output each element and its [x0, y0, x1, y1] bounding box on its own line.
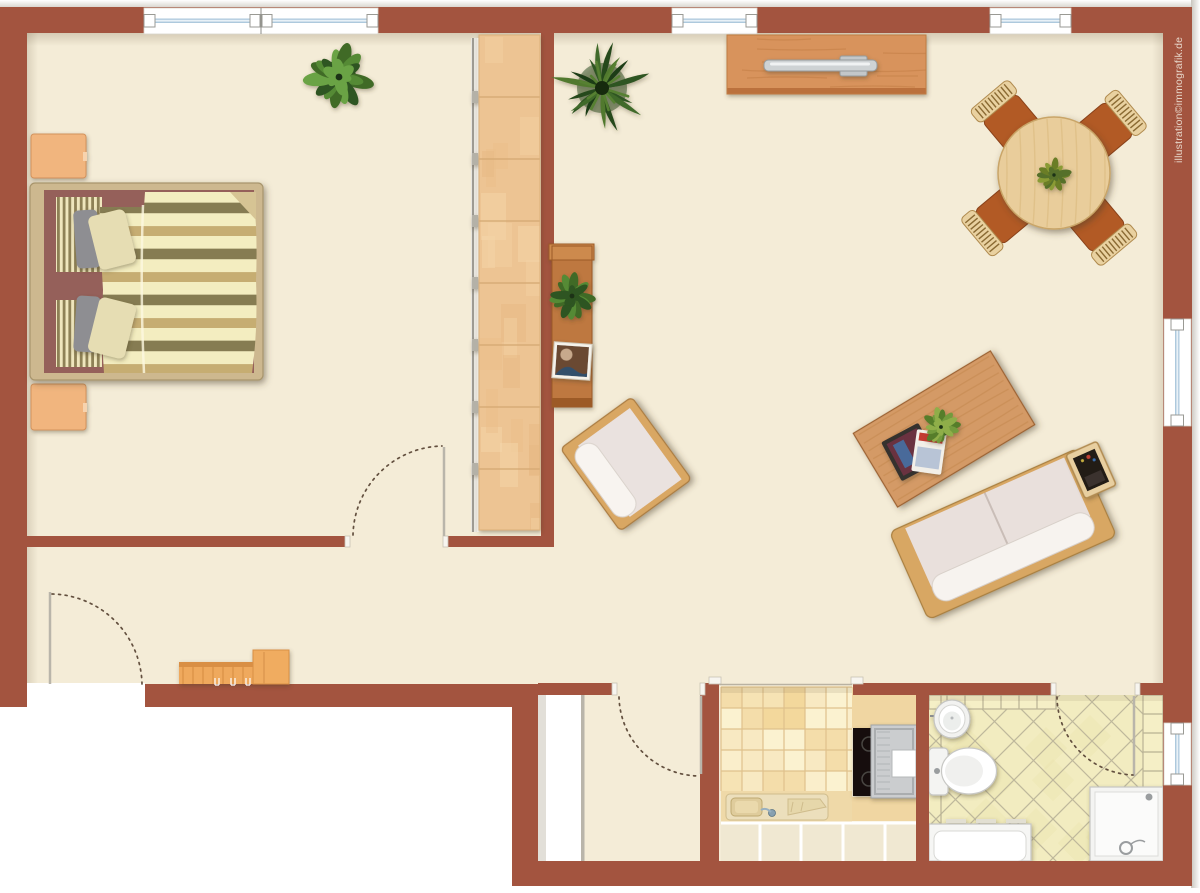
svg-text:illustration©immografik.de: illustration©immografik.de: [1173, 37, 1185, 163]
